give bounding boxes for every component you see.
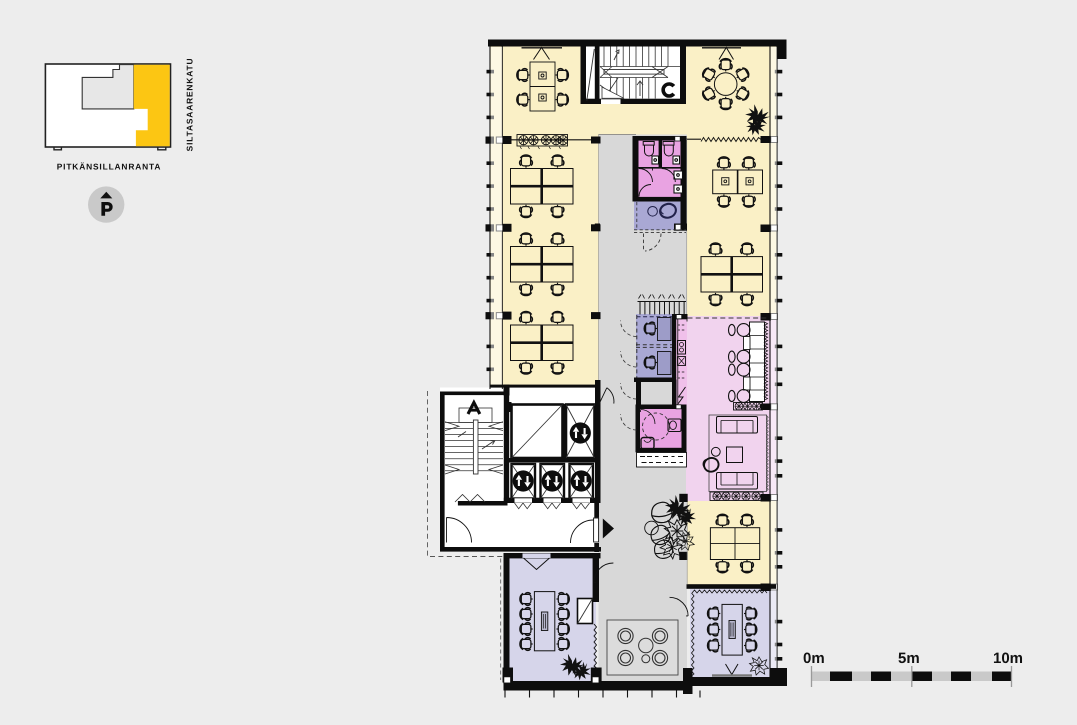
svg-text:0m: 0m — [803, 650, 825, 667]
svg-text:SILTASAARENKATU: SILTASAARENKATU — [184, 58, 194, 152]
svg-text:10m: 10m — [993, 650, 1023, 667]
svg-text:5m: 5m — [898, 650, 920, 667]
svg-text:PITKÄNSILLANRANTA: PITKÄNSILLANRANTA — [57, 162, 162, 172]
